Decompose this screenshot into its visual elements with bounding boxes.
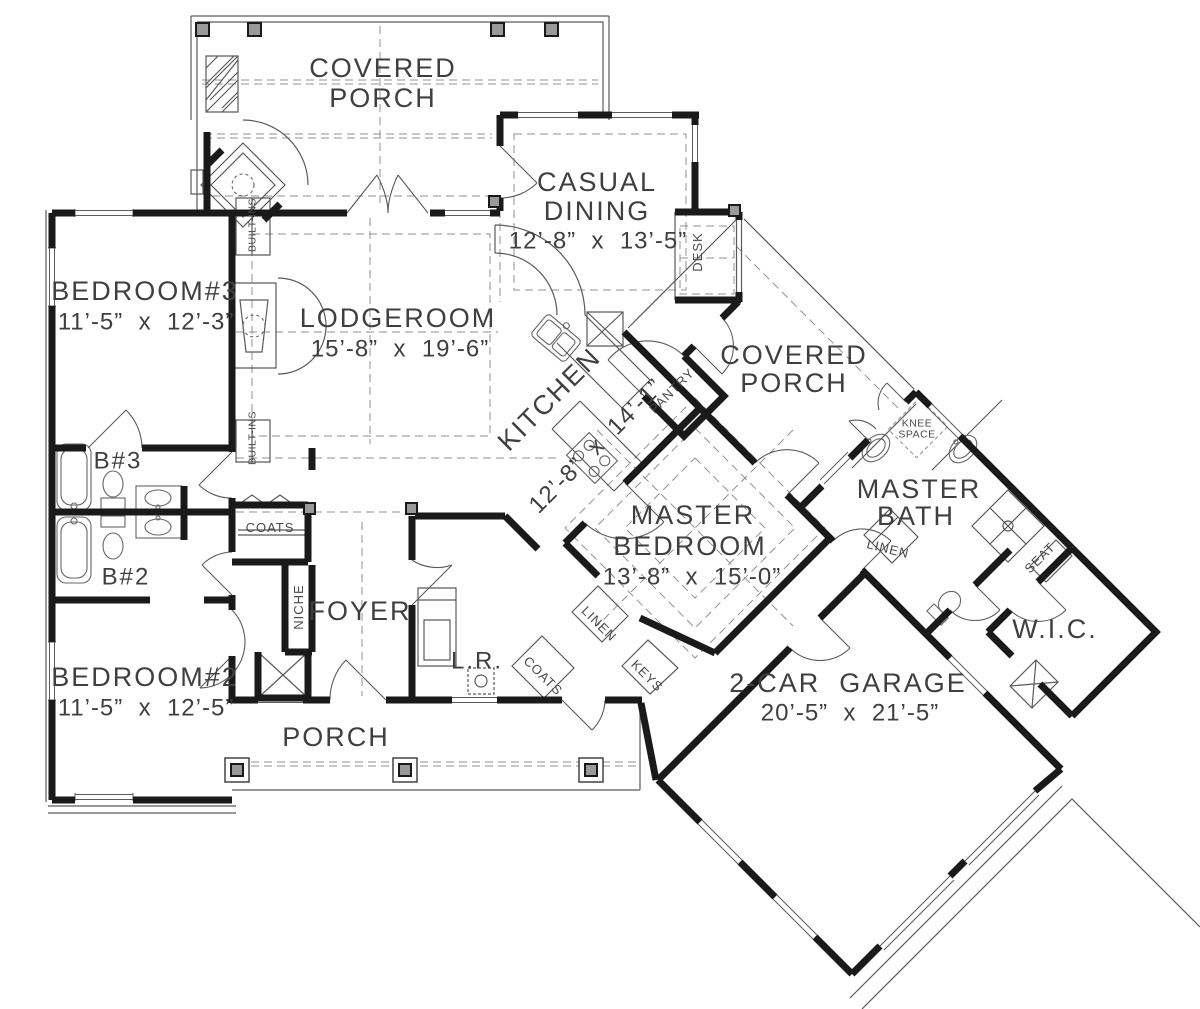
- room-dims-master-bedroom: 13’-8” x 15’-0”: [603, 564, 781, 589]
- room-label-master-bedroom-2: BEDROOM: [613, 532, 767, 560]
- room-label-bath-2: B#2: [102, 564, 151, 589]
- label-linen-master-bath: LINEN: [865, 537, 910, 561]
- room-label-master-bath: MASTER: [857, 475, 982, 503]
- label-coats-hall: COATS: [521, 654, 565, 698]
- room-label-foyer: FOYER: [308, 597, 411, 625]
- room-label-bedroom-3: BEDROOM#3: [51, 277, 239, 305]
- room-label-casual-dining-2: DINING: [544, 197, 651, 225]
- room-label-master-bath-2: BATH: [877, 502, 955, 530]
- room-label-master-bedroom: MASTER: [631, 501, 756, 529]
- label-keys: KEYS: [628, 657, 665, 694]
- room-label-bath-3: B#3: [94, 448, 143, 473]
- room-dims-bedroom-2: 11’-5” x 12’-5”: [58, 695, 235, 720]
- label-built-ins-lower: BUILT-INS: [247, 411, 258, 465]
- label-desk: DESK: [691, 232, 705, 271]
- room-label-lodgeroom: LODGEROOM: [300, 304, 497, 332]
- room-label-bedroom-2: BEDROOM#2: [51, 663, 239, 691]
- room-label-laundry: L.R.: [451, 648, 503, 673]
- room-label-covered-porch-right-2: PORCH: [740, 369, 848, 397]
- floor-plan: COVERED PORCH CASUAL DINING 12’-8” x 13’…: [0, 0, 1200, 1009]
- label-knee-space-2: SPACE: [898, 429, 935, 440]
- room-dims-casual-dining: 12’-8” x 13’-5”: [509, 228, 687, 253]
- label-linen-hall: LINEN: [579, 604, 619, 644]
- room-label-garage: 2-CAR GARAGE: [729, 669, 967, 697]
- room-dims-lodgeroom: 15’-8” x 19’-6”: [311, 336, 489, 361]
- room-label-porch: PORCH: [282, 723, 390, 751]
- label-seat: SEAT: [1022, 540, 1058, 576]
- room-label-covered-porch-right: COVERED: [720, 341, 868, 369]
- label-niche: NICHE: [292, 584, 306, 629]
- room-dims-garage: 20’-5” x 21’-5”: [761, 700, 939, 725]
- room-label-covered-porch-top-2: PORCH: [329, 84, 437, 112]
- room-dims-bedroom-3: 11’-5” x 12’-3”: [58, 309, 235, 334]
- room-label-covered-porch-top: COVERED: [309, 54, 457, 82]
- label-coats-foyer: COATS: [246, 521, 295, 535]
- room-label-casual-dining: CASUAL: [537, 168, 657, 196]
- room-label-wic: W.I.C.: [1012, 615, 1098, 643]
- labels-overlay: COVERED PORCH CASUAL DINING 12’-8” x 13’…: [0, 0, 1200, 1009]
- label-built-ins-upper: BUILT-INS: [247, 198, 258, 252]
